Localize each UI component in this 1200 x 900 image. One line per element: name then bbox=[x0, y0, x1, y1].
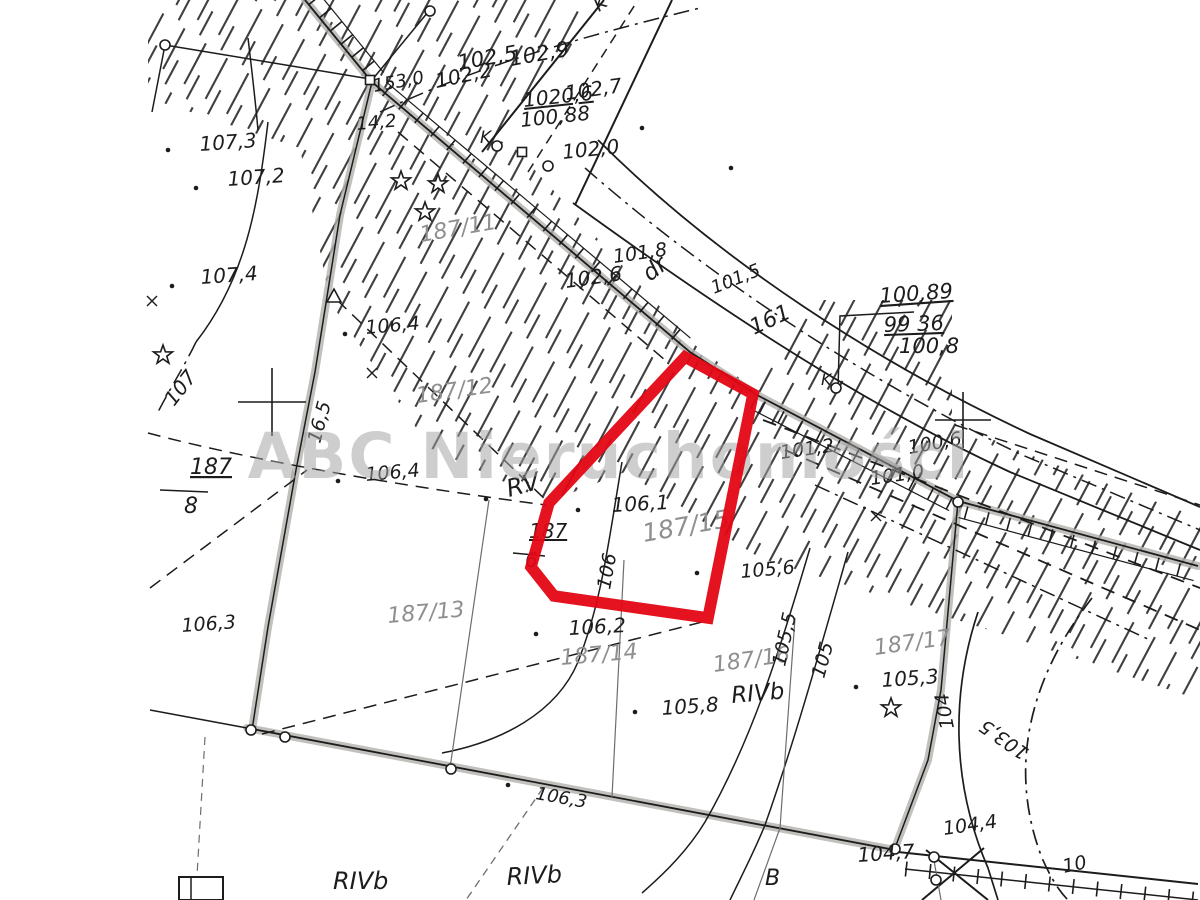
slope-stroke bbox=[804, 699, 826, 740]
slope-stroke bbox=[498, 221, 511, 245]
slope-stroke bbox=[405, 272, 427, 313]
slope-stroke bbox=[610, 342, 632, 383]
slope-stroke bbox=[137, 157, 159, 198]
map-text-label: 8 bbox=[184, 494, 198, 519]
map-text-label: 106,1 bbox=[611, 490, 669, 517]
slope-stroke bbox=[532, 172, 545, 196]
slope-stroke bbox=[905, 727, 918, 751]
slope-stroke bbox=[569, 345, 582, 369]
slope-stroke bbox=[466, 492, 479, 516]
slope-stroke bbox=[960, 693, 973, 717]
slope-stroke bbox=[870, 776, 883, 800]
slope-stroke bbox=[1136, 669, 1149, 693]
map-text-label: RIVb bbox=[506, 860, 563, 891]
slope-stroke bbox=[686, 133, 699, 157]
map-text-label: 10 bbox=[1060, 851, 1088, 878]
spot-height-dot bbox=[695, 571, 700, 576]
slope-stroke bbox=[1109, 797, 1122, 821]
slope-stroke bbox=[684, 101, 706, 142]
map-text-label: 101,5 bbox=[708, 260, 764, 299]
slope-stroke bbox=[286, 261, 308, 302]
map-text-label: 106,2 bbox=[568, 613, 626, 640]
slope-stroke bbox=[902, 505, 915, 529]
slope-stroke bbox=[1029, 594, 1042, 618]
slope-stroke bbox=[1069, 402, 1082, 426]
parcel-number-label: 187/13 bbox=[386, 597, 465, 629]
slope-stroke bbox=[301, 229, 314, 253]
slope-stroke bbox=[567, 313, 589, 354]
cadastral-map-view: 102,5102,9102,2153,014,21020,6102,7100,8… bbox=[0, 0, 1200, 900]
slope-stroke bbox=[947, 757, 960, 781]
slope-stroke bbox=[604, 295, 617, 319]
slope-stroke bbox=[272, 325, 294, 366]
slope-stroke bbox=[966, 740, 988, 781]
slope-stroke bbox=[844, 507, 866, 548]
slope-stroke bbox=[1091, 607, 1113, 648]
slope-stroke bbox=[750, 178, 763, 202]
slope-stroke bbox=[437, 1, 459, 42]
slope-stroke bbox=[330, 323, 343, 347]
slope-stroke bbox=[145, 236, 167, 277]
slope-stroke bbox=[1059, 878, 1081, 900]
boundary-point-circle bbox=[160, 40, 170, 50]
slope-stroke bbox=[979, 676, 1001, 717]
map-text-label: 187 bbox=[190, 455, 232, 480]
slope-stroke bbox=[1070, 592, 1092, 633]
boundary-point-circle bbox=[246, 725, 256, 735]
map-text-label: B bbox=[765, 866, 780, 891]
slope-stroke bbox=[630, 167, 643, 191]
slope-stroke bbox=[663, 86, 685, 127]
slope-stroke bbox=[665, 118, 678, 142]
slope-stroke bbox=[1080, 893, 1102, 900]
slope-stroke bbox=[190, 297, 203, 321]
slope-stroke bbox=[173, 139, 186, 163]
slope-stroke bbox=[131, 110, 144, 134]
spot-height-dot bbox=[194, 186, 199, 191]
slope-stroke bbox=[1106, 575, 1119, 599]
road-hatch-tick bbox=[1001, 872, 1003, 887]
slope-stroke bbox=[503, 78, 516, 102]
slope-stroke bbox=[1022, 705, 1044, 746]
boundary-point-circle bbox=[543, 161, 553, 171]
slope-stroke bbox=[373, 353, 386, 377]
boundary-point-circle bbox=[280, 732, 290, 742]
slope-stroke bbox=[211, 312, 224, 336]
slope-stroke bbox=[692, 180, 714, 221]
slope-stroke bbox=[851, 396, 864, 420]
slope-stroke bbox=[1051, 609, 1064, 633]
slope-stroke bbox=[1107, 765, 1129, 806]
slope-stroke bbox=[982, 311, 1004, 352]
slope-stroke bbox=[726, 131, 748, 172]
slope-stroke bbox=[734, 607, 747, 631]
slope-stroke bbox=[1133, 637, 1155, 678]
slope-stroke bbox=[1093, 639, 1106, 663]
map-text-label: 107 bbox=[159, 365, 202, 410]
map-text-label: 106,3 bbox=[181, 611, 237, 637]
slope-stroke bbox=[835, 238, 848, 262]
slope-stroke bbox=[692, 577, 705, 601]
slope-stroke bbox=[506, 300, 519, 324]
slope-stroke bbox=[913, 806, 926, 830]
slope-stroke bbox=[1157, 684, 1170, 708]
slope-stroke bbox=[1114, 654, 1127, 678]
slope-stroke bbox=[1016, 658, 1029, 682]
slope-stroke bbox=[1170, 620, 1183, 644]
slope-stroke bbox=[572, 567, 585, 591]
slope-stroke bbox=[998, 866, 1011, 890]
slope-stroke bbox=[1133, 447, 1146, 471]
slope-stroke bbox=[1117, 876, 1130, 900]
slope-stroke bbox=[910, 584, 923, 608]
slope-stroke bbox=[777, 240, 799, 281]
slope-stroke bbox=[471, 349, 484, 373]
slope-stroke bbox=[450, 334, 463, 358]
slope-stroke bbox=[690, 545, 712, 586]
slope-stroke bbox=[886, 537, 908, 578]
slope-stroke bbox=[1056, 656, 1078, 697]
map-text-label: 100,8 bbox=[899, 334, 959, 358]
slope-stroke bbox=[1037, 673, 1050, 697]
slope-stroke bbox=[492, 364, 505, 388]
slope-stroke bbox=[849, 761, 862, 785]
slope-stroke bbox=[1149, 795, 1171, 836]
slope-stroke bbox=[787, 351, 800, 375]
slope-stroke bbox=[1045, 355, 1067, 396]
slope-stroke bbox=[253, 342, 266, 366]
slope-stroke bbox=[854, 618, 867, 642]
slope-stroke bbox=[833, 206, 855, 247]
slope-stroke bbox=[158, 171, 180, 212]
slope-stroke bbox=[1094, 829, 1116, 870]
slope-stroke bbox=[272, 135, 285, 159]
slope-stroke bbox=[1192, 825, 1200, 866]
slope-stroke bbox=[232, 327, 245, 351]
slope-stroke bbox=[1027, 372, 1040, 396]
slope-stroke bbox=[152, 125, 165, 149]
slope-stroke bbox=[229, 105, 242, 129]
boundary-point-circle bbox=[931, 875, 941, 885]
slope-stroke bbox=[187, 75, 200, 99]
slope-stroke bbox=[83, 223, 96, 247]
road-hatch-tick bbox=[1156, 558, 1159, 571]
slope-stroke bbox=[971, 597, 993, 638]
slope-stroke bbox=[790, 176, 812, 217]
slope-stroke bbox=[889, 569, 902, 593]
slope-stroke bbox=[828, 746, 841, 770]
star-symbol bbox=[429, 174, 448, 192]
road-hatch-tick bbox=[929, 864, 931, 879]
slope-stroke bbox=[955, 836, 968, 860]
slope-stroke bbox=[679, 641, 692, 665]
slope-stroke bbox=[1086, 750, 1108, 791]
slope-stroke bbox=[203, 233, 216, 257]
slope-stroke bbox=[118, 174, 131, 198]
spot-height-dot bbox=[640, 126, 645, 131]
slope-stroke bbox=[811, 588, 824, 612]
star-symbol bbox=[882, 698, 901, 716]
slope-stroke bbox=[240, 9, 262, 50]
slope-stroke bbox=[206, 58, 228, 99]
slope-stroke bbox=[288, 293, 301, 317]
slope-stroke bbox=[1115, 844, 1137, 885]
slope-stroke bbox=[846, 539, 859, 563]
slope-stroke bbox=[144, 46, 157, 70]
road-hatch-tick bbox=[1120, 884, 1122, 899]
slope-stroke bbox=[525, 283, 547, 324]
spot-height-dot bbox=[506, 783, 511, 788]
map-text-label: 102,7 bbox=[563, 73, 623, 105]
slope-stroke bbox=[968, 772, 981, 796]
map-text-label: 106 bbox=[593, 551, 621, 591]
slope-stroke bbox=[129, 78, 151, 119]
map-text-label: RIVb bbox=[333, 867, 388, 895]
slope-stroke bbox=[227, 73, 249, 114]
slope-stroke bbox=[1067, 767, 1080, 791]
slope-stroke bbox=[1171, 810, 1193, 851]
slope-stroke bbox=[841, 285, 863, 326]
slope-stroke bbox=[1101, 718, 1114, 742]
slope-stroke bbox=[902, 695, 924, 736]
slope-stroke bbox=[1165, 763, 1178, 787]
slope-stroke bbox=[793, 208, 806, 232]
slope-stroke bbox=[277, 0, 290, 16]
slope-stroke bbox=[995, 834, 1017, 875]
road-hatch-tick bbox=[964, 507, 967, 519]
slope-stroke bbox=[838, 650, 860, 691]
map-text-label: 102,0 bbox=[561, 134, 620, 164]
slope-stroke bbox=[745, 511, 767, 552]
slope-stroke bbox=[328, 101, 341, 125]
slope-stroke bbox=[960, 296, 982, 337]
slope-stroke bbox=[181, 218, 194, 242]
slope-stroke bbox=[1008, 580, 1021, 604]
slope-stroke bbox=[607, 517, 620, 541]
slope-stroke bbox=[179, 0, 192, 20]
slope-stroke bbox=[546, 298, 568, 339]
slope-stroke bbox=[487, 507, 500, 531]
slope-stroke bbox=[160, 204, 173, 228]
star-symbol bbox=[154, 345, 173, 363]
slope-stroke bbox=[1001, 691, 1023, 732]
star-symbol bbox=[416, 202, 435, 220]
slope-stroke bbox=[283, 39, 305, 80]
slope-stroke bbox=[880, 490, 893, 514]
slope-stroke bbox=[945, 725, 967, 766]
slope-stroke bbox=[700, 656, 713, 680]
slope-stroke bbox=[1194, 460, 1200, 501]
slope-stroke bbox=[1080, 703, 1093, 727]
slope-stroke bbox=[671, 165, 693, 206]
slope-stroke bbox=[222, 216, 244, 257]
slope-stroke bbox=[814, 223, 827, 247]
slope-stroke bbox=[256, 0, 269, 1]
slope-stroke bbox=[200, 11, 213, 35]
slope-stroke bbox=[1043, 720, 1065, 761]
slope-stroke bbox=[628, 135, 650, 176]
slope-stroke bbox=[104, 238, 117, 262]
slope-stroke bbox=[984, 343, 997, 367]
slope-stroke bbox=[769, 161, 791, 202]
spot-height-dot bbox=[534, 632, 539, 637]
slope-stroke bbox=[391, 146, 404, 170]
slope-stroke bbox=[649, 150, 671, 191]
slope-stroke bbox=[952, 614, 965, 638]
road-hatch-tick bbox=[1073, 879, 1075, 894]
slope-stroke bbox=[280, 214, 293, 238]
slope-stroke bbox=[370, 131, 383, 155]
slope-stroke bbox=[1014, 626, 1036, 667]
map-text-label: K bbox=[821, 370, 833, 389]
slope-stroke bbox=[275, 357, 288, 381]
slope-stroke bbox=[1005, 358, 1018, 382]
slope-stroke bbox=[1120, 511, 1133, 535]
slope-stroke bbox=[165, 60, 178, 84]
slope-stroke bbox=[81, 191, 103, 232]
slope-stroke bbox=[360, 20, 382, 61]
slope-stroke bbox=[1011, 404, 1033, 445]
map-text-label: 107,3 bbox=[199, 128, 258, 156]
slope-stroke bbox=[503, 268, 525, 309]
slope-stroke bbox=[548, 330, 561, 354]
slope-stroke bbox=[783, 684, 805, 725]
map-text-label: 104,4 bbox=[942, 811, 999, 840]
slope-stroke bbox=[1064, 735, 1086, 776]
slope-stroke bbox=[1168, 588, 1190, 629]
slope-stroke bbox=[230, 295, 252, 336]
slope-stroke bbox=[1030, 784, 1052, 825]
slope-stroke bbox=[208, 90, 221, 114]
slope-stroke bbox=[429, 319, 442, 343]
slope-stroke bbox=[376, 178, 398, 219]
slope-stroke bbox=[533, 362, 555, 403]
boundary-point-circle bbox=[953, 497, 963, 507]
slope-stroke bbox=[1189, 603, 1200, 644]
spot-height-dot bbox=[484, 497, 489, 502]
slope-stroke bbox=[261, 24, 283, 65]
map-text-label: 107,2 bbox=[227, 163, 286, 191]
map-text-label: 106,4 bbox=[365, 312, 421, 339]
slope-stroke bbox=[1155, 652, 1177, 693]
road-hatch-tick bbox=[1007, 518, 1010, 531]
slope-stroke bbox=[511, 157, 524, 181]
slope-stroke bbox=[461, 238, 483, 279]
spot-height-dot bbox=[343, 332, 348, 337]
slope-stroke bbox=[511, 347, 533, 388]
slope-stroke bbox=[314, 165, 327, 189]
slope-stroke bbox=[907, 552, 929, 593]
slope-stroke bbox=[995, 644, 1008, 668]
slope-stroke bbox=[1009, 769, 1031, 810]
slope-stroke bbox=[1011, 802, 1024, 826]
road-hatch-tick bbox=[905, 862, 907, 877]
slope-stroke bbox=[102, 206, 124, 247]
slope-stroke bbox=[179, 186, 201, 227]
slope-stroke bbox=[628, 532, 641, 556]
slope-stroke bbox=[1048, 387, 1061, 411]
slope-stroke bbox=[822, 492, 844, 533]
slope-stroke bbox=[484, 285, 497, 309]
slope-stroke bbox=[426, 287, 448, 328]
slope-stroke bbox=[397, 3, 410, 27]
slope-stroke bbox=[1051, 799, 1073, 840]
slope-stroke bbox=[1176, 667, 1198, 708]
slope-stroke bbox=[891, 791, 904, 815]
slope-stroke bbox=[841, 682, 854, 706]
slope-stroke bbox=[1035, 641, 1057, 682]
slope-stroke bbox=[378, 210, 391, 234]
slope-stroke bbox=[299, 197, 321, 238]
slope-stroke bbox=[94, 127, 116, 168]
slope-stroke bbox=[987, 755, 1009, 796]
slope-stroke bbox=[463, 270, 476, 294]
slope-stroke bbox=[147, 268, 160, 292]
slope-stroke bbox=[269, 103, 291, 144]
road-hatch-tick bbox=[953, 867, 955, 882]
slope-stroke bbox=[495, 0, 508, 22]
slope-stroke bbox=[1141, 716, 1163, 757]
boundary-point-circle bbox=[492, 141, 502, 151]
road-hatch-tick bbox=[759, 402, 765, 414]
slope-stroke bbox=[705, 116, 727, 157]
spot-height-dot bbox=[854, 685, 859, 690]
slope-stroke bbox=[1178, 699, 1191, 723]
slope-stroke bbox=[267, 278, 280, 302]
slope-stroke bbox=[535, 394, 548, 418]
slope-stroke bbox=[974, 629, 987, 653]
slope-stroke bbox=[60, 176, 82, 217]
slope-stroke bbox=[1163, 731, 1185, 772]
slope-stroke bbox=[1090, 417, 1103, 441]
map-text-label: 102,9 bbox=[508, 37, 571, 71]
slope-stroke bbox=[1131, 415, 1153, 456]
road-hatch-tick bbox=[977, 869, 979, 884]
spot-height-dot bbox=[633, 710, 638, 715]
slope-stroke bbox=[312, 133, 334, 174]
slope-stroke bbox=[285, 71, 298, 95]
slope-stroke bbox=[713, 195, 735, 236]
road-hatch-tick bbox=[986, 512, 989, 525]
slope-stroke bbox=[782, 494, 795, 518]
slope-stroke bbox=[1122, 733, 1135, 757]
slope-stroke bbox=[96, 159, 109, 183]
slope-stroke bbox=[1109, 400, 1131, 441]
spot-height-dot bbox=[576, 508, 581, 513]
slope-stroke bbox=[734, 210, 756, 251]
slope-stroke bbox=[365, 274, 378, 298]
slope-stroke bbox=[990, 787, 1003, 811]
slope-stroke bbox=[474, 0, 487, 8]
spot-height-dot bbox=[166, 148, 171, 153]
slope-stroke bbox=[588, 327, 610, 368]
map-text-label: 107,4 bbox=[200, 261, 259, 289]
slope-stroke bbox=[413, 161, 426, 185]
slope-stroke bbox=[455, 191, 468, 215]
slope-stroke bbox=[931, 599, 944, 623]
slope-stroke bbox=[1088, 385, 1110, 426]
spot-height-dot bbox=[170, 284, 175, 289]
slope-stroke bbox=[570, 535, 592, 576]
map-text-label: RIVb bbox=[730, 678, 785, 709]
slope-stroke bbox=[966, 550, 979, 574]
map-text-label: 105 bbox=[808, 640, 839, 681]
slope-stroke bbox=[707, 148, 720, 172]
slope-stroke bbox=[756, 622, 769, 646]
map-text-label: 104,7 bbox=[857, 839, 916, 867]
slope-stroke bbox=[1160, 509, 1182, 550]
slope-stroke bbox=[976, 454, 998, 495]
